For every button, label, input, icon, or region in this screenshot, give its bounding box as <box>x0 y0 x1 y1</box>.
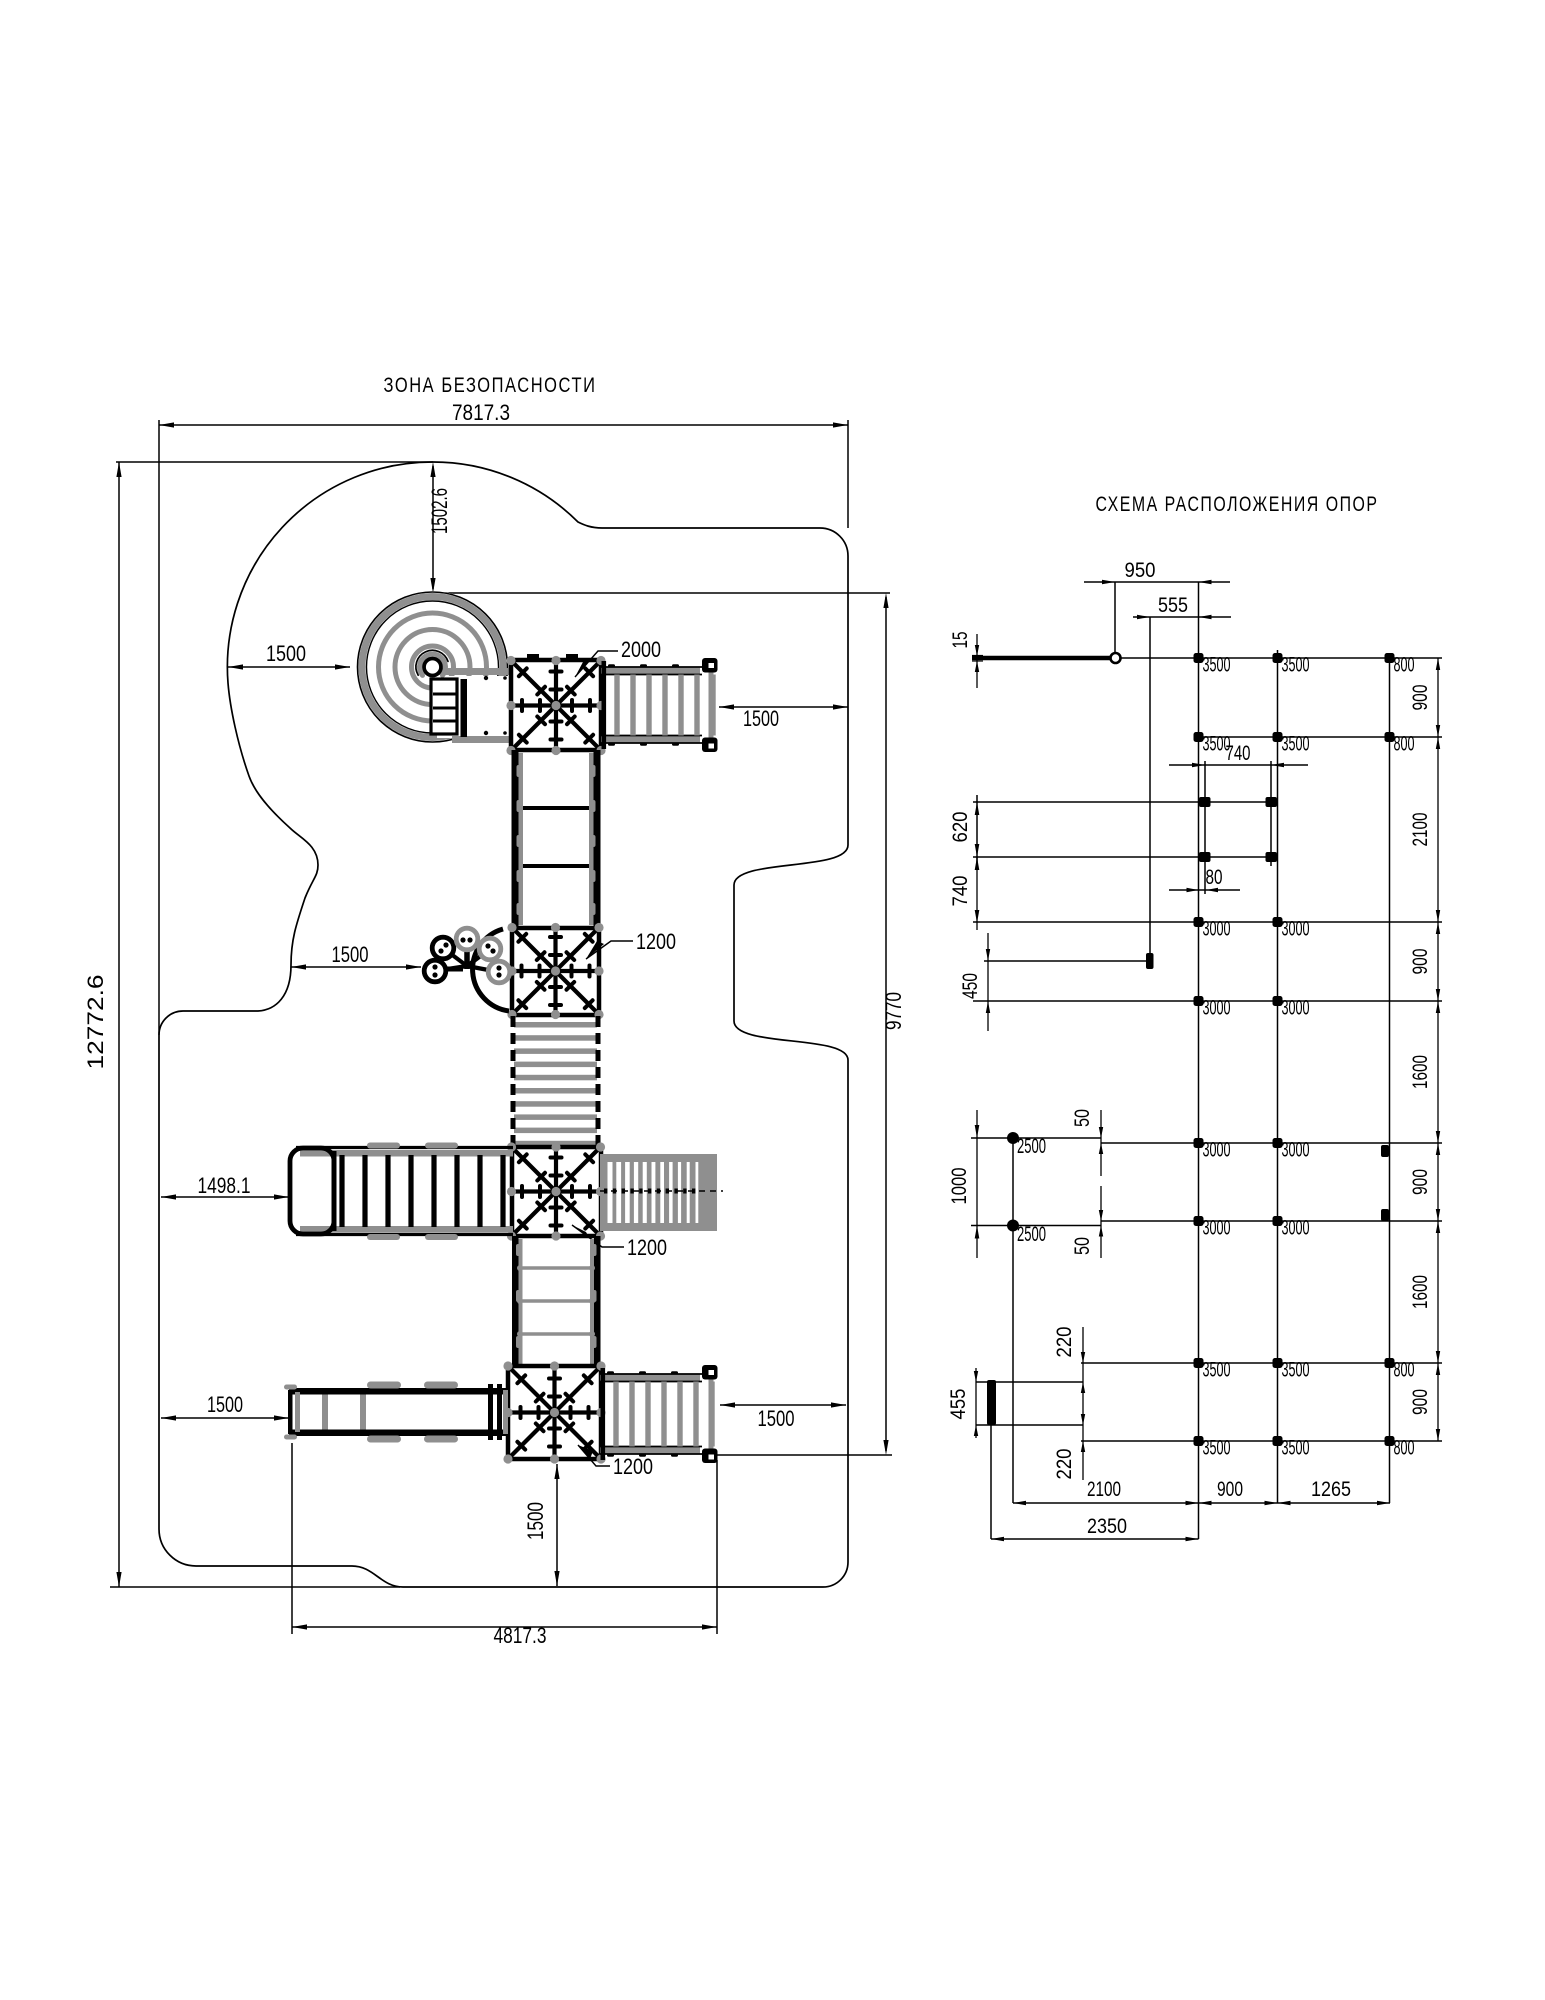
svg-text:900: 900 <box>1409 949 1432 975</box>
svg-text:740: 740 <box>949 876 972 907</box>
svg-text:620: 620 <box>949 812 972 843</box>
svg-text:1200: 1200 <box>613 1454 653 1479</box>
svg-text:1200: 1200 <box>636 929 676 954</box>
svg-text:455: 455 <box>947 1389 970 1420</box>
svg-text:3000: 3000 <box>1282 1217 1310 1240</box>
svg-text:9770: 9770 <box>881 992 906 1030</box>
svg-text:800: 800 <box>1394 654 1415 677</box>
svg-text:220: 220 <box>1053 1449 1076 1480</box>
svg-text:1600: 1600 <box>1409 1055 1432 1089</box>
svg-text:1600: 1600 <box>1409 1275 1432 1309</box>
svg-text:220: 220 <box>1053 1327 1076 1358</box>
svg-text:1502.6: 1502.6 <box>427 488 452 534</box>
svg-text:2100: 2100 <box>1409 813 1432 847</box>
svg-text:555: 555 <box>1158 594 1188 617</box>
svg-text:2350: 2350 <box>1087 1515 1127 1538</box>
svg-text:800: 800 <box>1394 1437 1415 1460</box>
svg-text:50: 50 <box>1071 1237 1094 1255</box>
svg-text:50: 50 <box>1071 1109 1094 1127</box>
svg-text:900: 900 <box>1217 1478 1243 1501</box>
svg-text:3500: 3500 <box>1203 654 1231 677</box>
svg-text:1500: 1500 <box>523 1502 548 1540</box>
svg-text:2100: 2100 <box>1087 1478 1121 1501</box>
svg-text:1500: 1500 <box>332 942 369 967</box>
svg-text:2500: 2500 <box>1017 1223 1046 1246</box>
svg-text:80: 80 <box>1206 866 1223 889</box>
svg-text:15: 15 <box>949 632 972 649</box>
svg-text:1000: 1000 <box>948 1168 971 1205</box>
svg-text:1500: 1500 <box>758 1406 795 1431</box>
svg-text:3000: 3000 <box>1282 997 1310 1020</box>
svg-text:1500: 1500 <box>207 1392 243 1417</box>
svg-text:450: 450 <box>959 973 982 999</box>
svg-text:1265: 1265 <box>1311 1478 1351 1501</box>
svg-text:7817.3: 7817.3 <box>452 400 510 425</box>
svg-text:ЗОНА БЕЗОПАСНОСТИ: ЗОНА БЕЗОПАСНОСТИ <box>384 374 597 397</box>
svg-text:3500: 3500 <box>1203 1359 1231 1382</box>
svg-text:740: 740 <box>1226 742 1251 765</box>
svg-text:800: 800 <box>1394 1359 1415 1382</box>
svg-text:2500: 2500 <box>1017 1135 1046 1158</box>
svg-text:3500: 3500 <box>1282 733 1310 756</box>
svg-text:3500: 3500 <box>1282 654 1310 677</box>
svg-text:1498.1: 1498.1 <box>198 1173 251 1198</box>
svg-text:1500: 1500 <box>266 641 306 666</box>
svg-text:3500: 3500 <box>1282 1437 1310 1460</box>
svg-text:3000: 3000 <box>1282 918 1310 941</box>
svg-text:900: 900 <box>1409 1169 1432 1195</box>
svg-text:3000: 3000 <box>1282 1139 1310 1162</box>
svg-text:2000: 2000 <box>621 637 661 662</box>
svg-text:950: 950 <box>1125 559 1156 582</box>
svg-text:3500: 3500 <box>1282 1359 1310 1382</box>
svg-text:СХЕМА РАСПОЛОЖЕНИЯ ОПОР: СХЕМА РАСПОЛОЖЕНИЯ ОПОР <box>1096 493 1379 516</box>
svg-text:12772.6: 12772.6 <box>83 975 108 1070</box>
svg-text:900: 900 <box>1409 1389 1432 1415</box>
svg-text:3500: 3500 <box>1203 1437 1231 1460</box>
svg-text:900: 900 <box>1409 685 1432 711</box>
svg-text:1500: 1500 <box>743 706 779 731</box>
svg-text:3000: 3000 <box>1203 1217 1231 1240</box>
svg-text:1200: 1200 <box>627 1235 667 1260</box>
svg-text:3000: 3000 <box>1203 918 1231 941</box>
svg-text:4817.3: 4817.3 <box>494 1623 547 1648</box>
svg-text:3000: 3000 <box>1203 997 1231 1020</box>
svg-text:3000: 3000 <box>1203 1139 1231 1162</box>
svg-text:800: 800 <box>1394 733 1415 756</box>
